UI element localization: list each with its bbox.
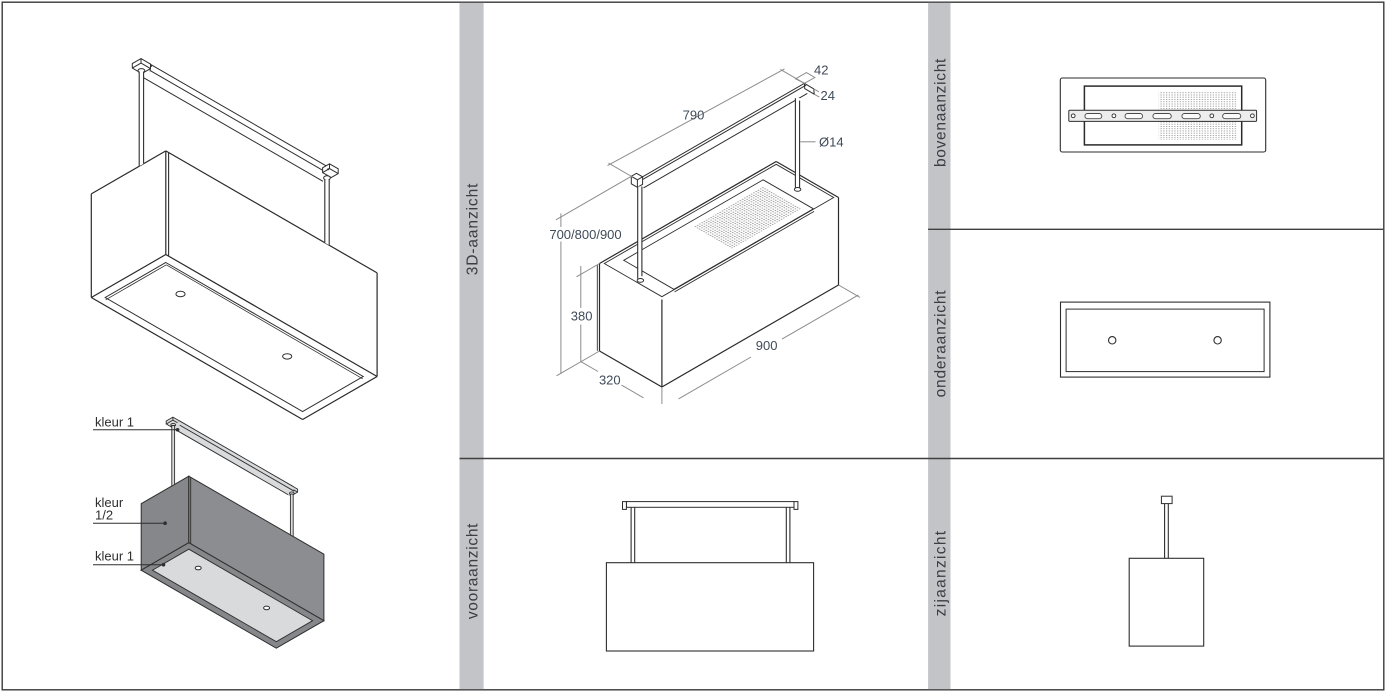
svg-text:24: 24	[821, 88, 835, 103]
svg-text:3D-aanzicht: 3D-aanzicht	[465, 183, 482, 276]
svg-text:onderaanzicht: onderaanzicht	[932, 290, 949, 398]
svg-text:kleur 1: kleur 1	[95, 415, 134, 430]
svg-text:42: 42	[814, 63, 828, 78]
svg-text:kleur 1: kleur 1	[95, 549, 134, 564]
svg-text:700/800/900: 700/800/900	[549, 227, 621, 242]
svg-text:1/2: 1/2	[95, 508, 113, 523]
svg-text:900: 900	[756, 338, 778, 353]
svg-text:380: 380	[571, 309, 593, 324]
svg-text:vooraanzicht: vooraanzicht	[465, 523, 482, 619]
svg-text:zijaanzicht: zijaanzicht	[932, 530, 949, 617]
svg-text:Ø14: Ø14	[819, 135, 844, 150]
svg-text:790: 790	[683, 108, 705, 123]
svg-text:320: 320	[599, 373, 621, 388]
svg-text:bovenaanzicht: bovenaanzicht	[932, 58, 949, 167]
